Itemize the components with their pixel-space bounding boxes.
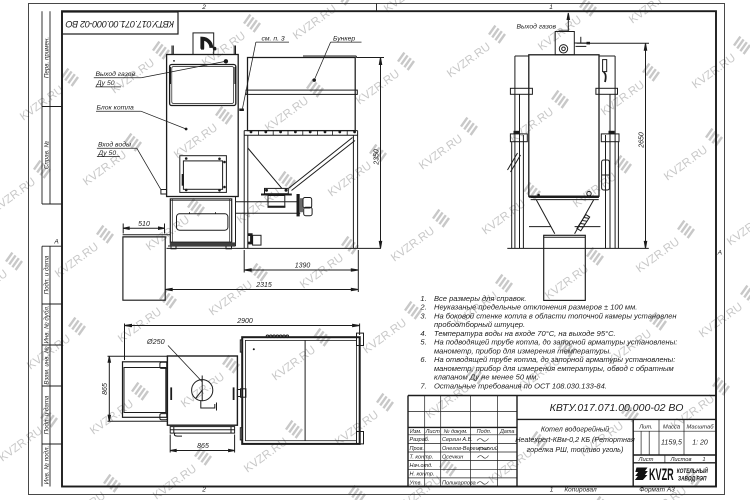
svg-text:пробоотборный штуцер.: пробоотборный штуцер.: [434, 320, 525, 329]
svg-text:2: 2: [201, 487, 206, 494]
svg-text:Вход воды: Вход воды: [98, 141, 131, 149]
svg-text:2350: 2350: [374, 149, 381, 166]
svg-text:Лист: Лист: [638, 457, 654, 463]
svg-text:1: 20: 1: 20: [692, 440, 708, 447]
svg-text:Т. контр.: Т. контр.: [410, 454, 434, 460]
svg-text:Выход газов: Выход газов: [96, 70, 136, 78]
svg-text:Выход газов: Выход газов: [517, 22, 557, 30]
svg-text:Поликарпова: Поликарпова: [442, 480, 476, 486]
svg-text:Разраб.: Разраб.: [410, 437, 430, 443]
svg-text:Онегов-Верещинский: Онегов-Верещинский: [442, 445, 498, 452]
svg-text:Дата: Дата: [499, 429, 515, 435]
svg-text:Остальные требования по ОСТ 10: Остальные требования по ОСТ 108.030.133-…: [434, 381, 607, 390]
svg-text:Справ. №: Справ. №: [43, 141, 50, 169]
svg-text:2650: 2650: [638, 132, 645, 149]
svg-text:Лит.: Лит.: [638, 424, 653, 430]
svg-text:Бункер: Бункер: [333, 35, 355, 42]
svg-text:КВТУ.017.071.00.000-02 ВО: КВТУ.017.071.00.000-02 ВО: [550, 402, 684, 414]
svg-text:Масса: Масса: [663, 424, 681, 430]
svg-text:Температура воды на входе 70°С: Температура воды на входе 70°С, на выход…: [434, 329, 616, 338]
svg-text:3.: 3.: [420, 311, 426, 320]
svg-text:А: А: [717, 250, 722, 257]
svg-text:6.: 6.: [420, 355, 426, 364]
svg-text:№ докум.: № докум.: [443, 429, 467, 435]
svg-text:Утв.: Утв.: [409, 480, 423, 486]
svg-text:Взам. инв. №: Взам. инв. №: [43, 346, 50, 385]
svg-text:1.: 1.: [420, 294, 426, 303]
svg-text:Перв. примен.: Перв. примен.: [43, 37, 50, 78]
svg-text:горелка РШ, топливо уголь): горелка РШ, топливо уголь): [527, 445, 624, 454]
svg-text:А: А: [53, 239, 58, 246]
svg-text:Ду 50: Ду 50: [96, 80, 115, 87]
svg-text:Неуказаные предельные отклонен: Неуказаные предельные отклонения размеро…: [434, 303, 637, 312]
svg-text:Подп. и дата: Подп. и дата: [43, 255, 50, 294]
svg-text:2315: 2315: [255, 282, 272, 289]
svg-text:Heatexpert-КВм-0,2 КБ (Ретортн: Heatexpert-КВм-0,2 КБ (Ретортная: [515, 435, 635, 444]
svg-text:КВТУ.017.071.00.000-02 ВО: КВТУ.017.071.00.000-02 ВО: [66, 19, 174, 29]
svg-text:Подп. и дата: Подп. и дата: [43, 395, 50, 434]
svg-text:1390: 1390: [295, 262, 311, 269]
svg-text:На боковой стенке котла в обла: На боковой стенке котла в области топочн…: [434, 311, 677, 320]
svg-text:Пров.: Пров.: [410, 446, 425, 452]
svg-text:Н. контр.: Н. контр.: [410, 472, 435, 478]
svg-text:1: 1: [702, 457, 705, 463]
svg-text:Осечкин: Осечкин: [442, 454, 463, 460]
svg-text:Сергин А.В.: Сергин А.В.: [442, 437, 473, 443]
svg-text:KVZR: KVZR: [649, 465, 674, 484]
svg-text:На подводящей трубе котла, до: На подводящей трубе котла, до запорной а…: [434, 338, 677, 347]
svg-text:Формат А3: Формат А3: [639, 487, 675, 494]
svg-text:510: 510: [138, 221, 150, 228]
svg-text:7.: 7.: [420, 381, 426, 390]
svg-text:1: 1: [549, 4, 553, 11]
svg-text:Копировал: Копировал: [564, 487, 597, 494]
svg-text:Все размеры для справок.: Все размеры для справок.: [434, 294, 526, 303]
svg-text:Изм.: Изм.: [410, 429, 422, 435]
svg-text:1159,5: 1159,5: [661, 440, 682, 447]
svg-text:1: 1: [550, 487, 554, 494]
svg-text:манометр, прибор для измерения: манометр, прибор для измерения температу…: [434, 346, 611, 355]
svg-text:Инв. № подл.: Инв. № подл.: [43, 446, 50, 484]
svg-text:Ду 50: Ду 50: [97, 150, 116, 157]
svg-text:Котел водогрейный: Котел водогрейный: [541, 424, 609, 433]
svg-text:2.: 2.: [419, 303, 426, 312]
svg-text:На отводящей трубе котла, до з: На отводящей трубе котла, до запорной ар…: [434, 355, 675, 364]
svg-text:см. п. 3: см. п. 3: [262, 35, 285, 42]
svg-text:865: 865: [197, 443, 209, 450]
svg-text:Нач.отд.: Нач.отд.: [410, 463, 433, 469]
svg-text:Листов: Листов: [669, 457, 691, 463]
svg-text:4.: 4.: [420, 329, 426, 338]
svg-text:5.: 5.: [420, 338, 426, 347]
svg-text:манометр, прибор для измерения: манометр, прибор для измерения емператур…: [434, 364, 675, 373]
svg-text:2: 2: [201, 4, 206, 11]
svg-text:Инв. № дубл.: Инв. № дубл.: [43, 305, 50, 343]
svg-text:2900: 2900: [236, 318, 253, 325]
svg-text:Блок котла: Блок котла: [97, 105, 134, 112]
svg-text:Масштаб: Масштаб: [686, 424, 714, 430]
svg-text:КОТЕЛЬНЫЙ: КОТЕЛЬНЫЙ: [677, 466, 708, 475]
svg-text:Лист: Лист: [425, 429, 441, 435]
svg-text:клапаном Ду не менее 50 мм.: клапаном Ду не менее 50 мм.: [434, 373, 539, 382]
svg-text:Подп.: Подп.: [477, 429, 492, 435]
svg-text:ЗАВОД РЭП: ЗАВОД РЭП: [678, 476, 707, 483]
svg-text:865: 865: [102, 383, 109, 395]
svg-text:Ø250: Ø250: [146, 337, 165, 346]
